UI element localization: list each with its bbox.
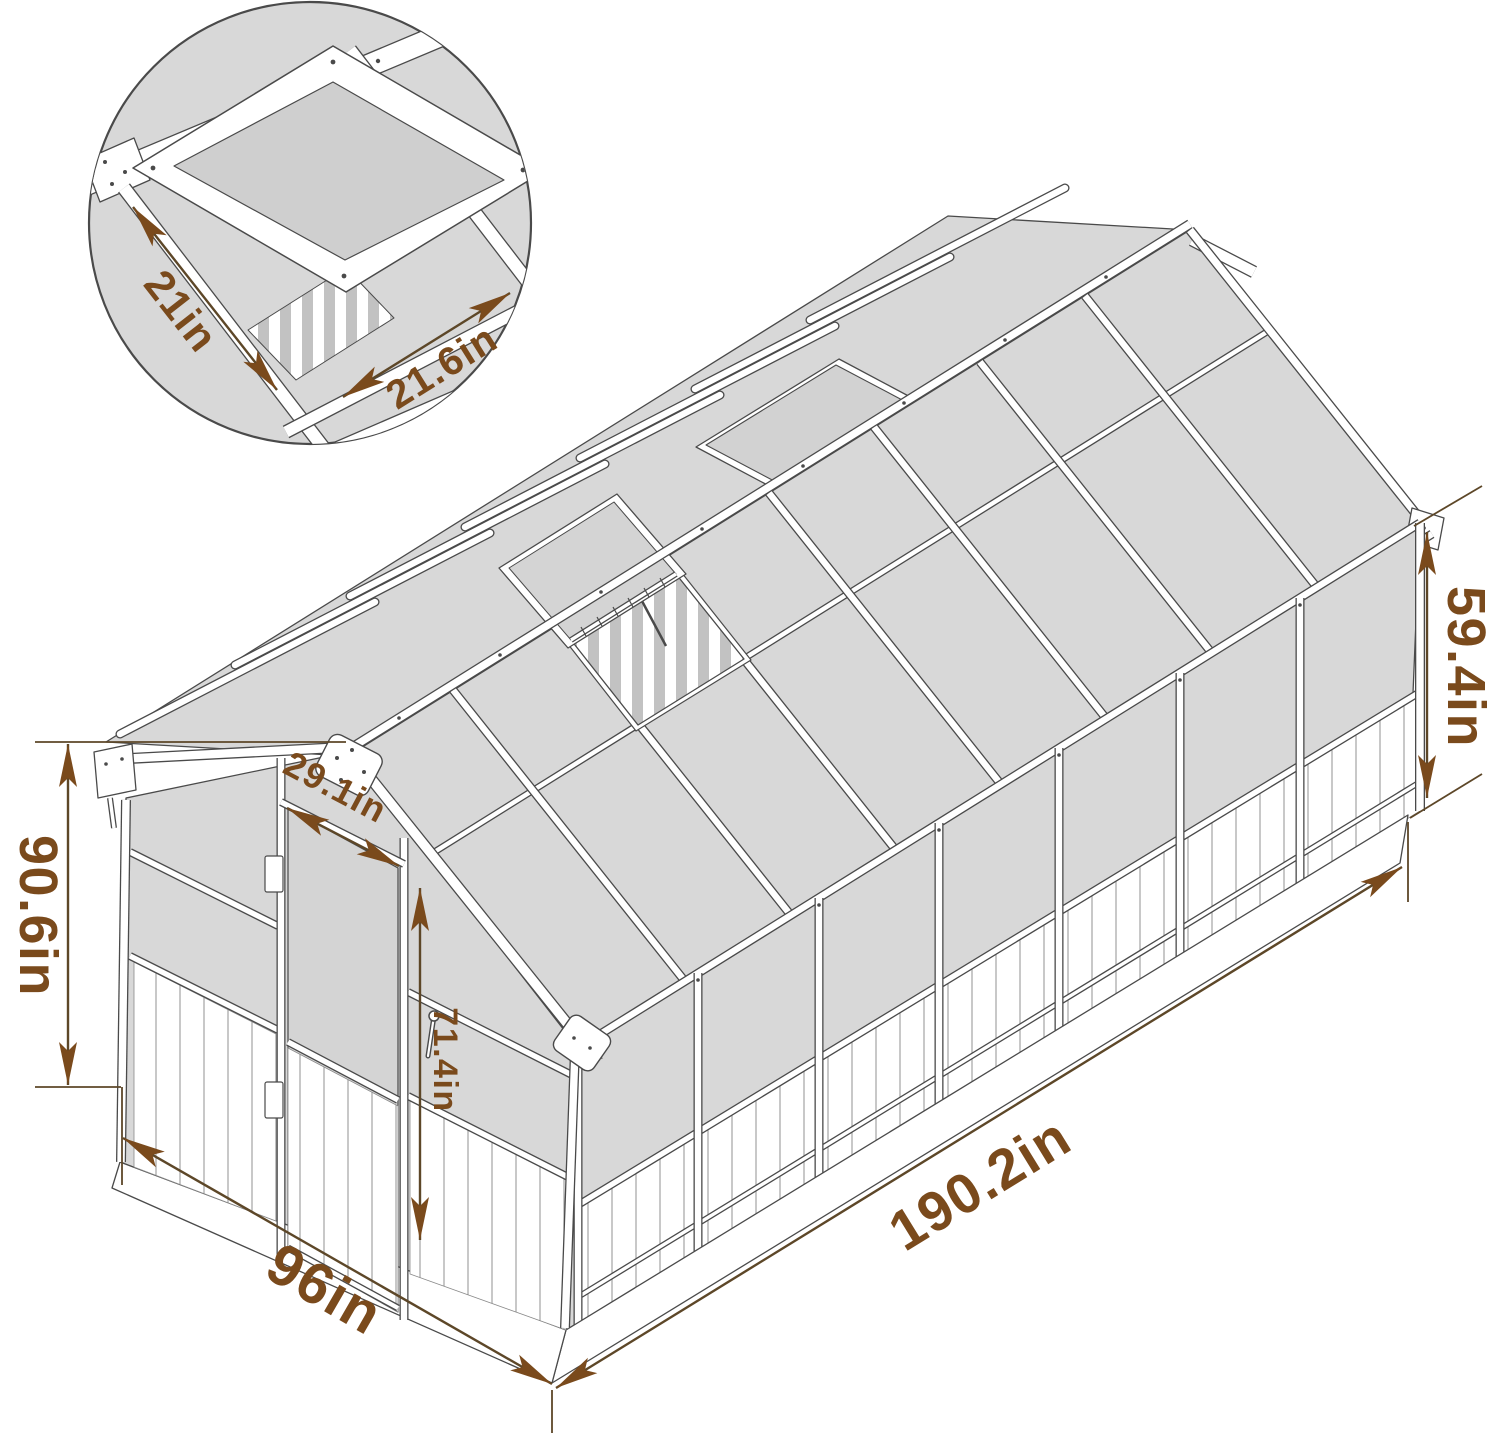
dimension-label-total-height: 90.6in xyxy=(8,835,68,997)
greenhouse-dimension-diagram: 90.6in 59.4in 29.1in 71.4in 190.2in xyxy=(0,0,1500,1434)
door-hinge-bottom xyxy=(265,1082,283,1118)
dimension-label-roof-panel-height: 59.4in xyxy=(1436,586,1496,748)
eave-bracket-left xyxy=(94,744,136,798)
door-hinge-top xyxy=(265,856,283,892)
inset-vent-detail: 21in 21.6in xyxy=(58,2,582,492)
dimension-label-door-height: 71.4in xyxy=(426,1007,464,1112)
diagram-canvas: 90.6in 59.4in 29.1in 71.4in 190.2in xyxy=(0,0,1500,1434)
